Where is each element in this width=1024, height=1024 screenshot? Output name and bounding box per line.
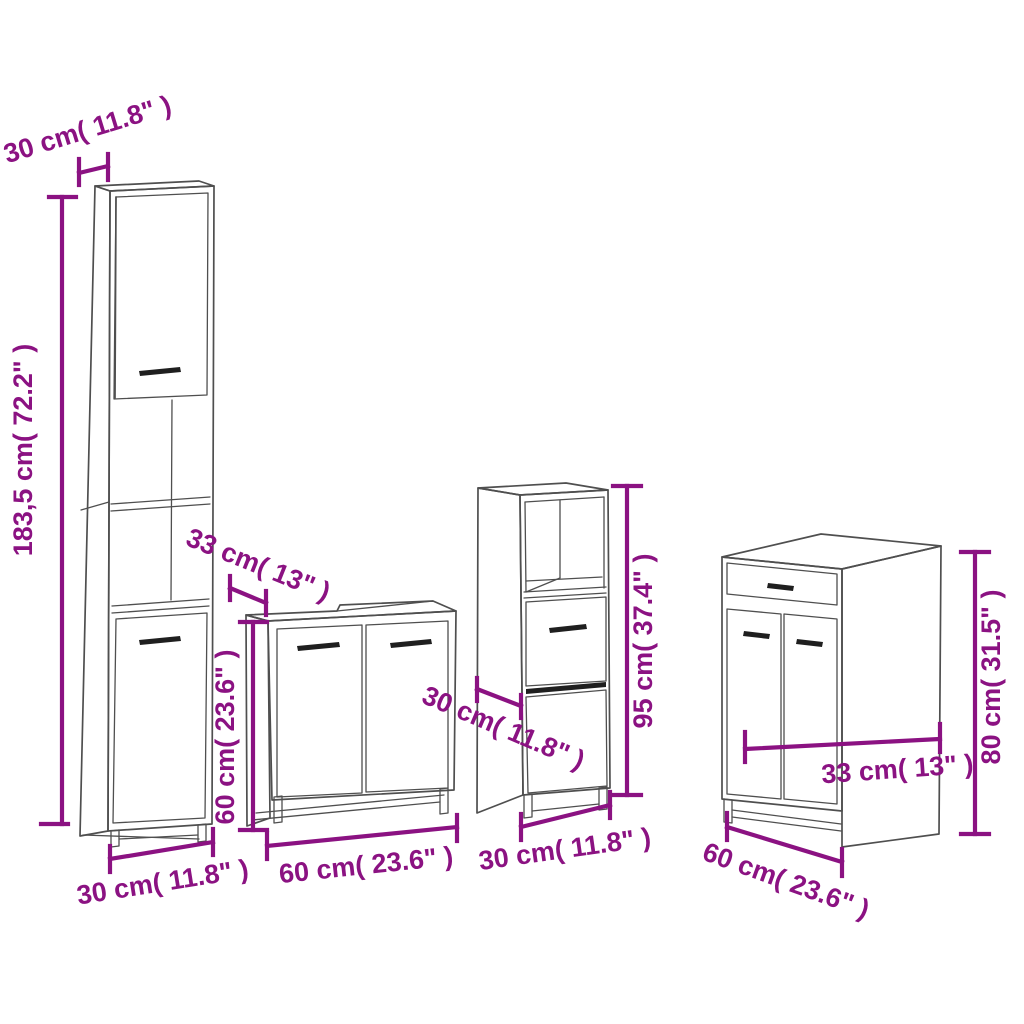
sink-cabinet-left-door — [277, 625, 362, 797]
tall-cabinet-left-leg — [111, 830, 119, 847]
side-cabinet-drawer-handle — [767, 583, 794, 591]
side-cabinet-top-face — [722, 534, 941, 569]
slim-width-label: 30 cm( 11.8" ) — [477, 822, 653, 876]
slim-cabinet-open-top-edge — [525, 497, 604, 502]
side-cabinet-side-panel — [842, 546, 941, 847]
sink-cabinet-right-leg — [440, 788, 448, 814]
tall-cabinet-upper-door-edge — [115, 197, 116, 398]
tall-height-dimension — [41, 197, 76, 824]
side-cabinet-right-door-handle — [796, 639, 823, 647]
tall-width-label: 30 cm( 11.8" ) — [75, 854, 251, 911]
sink-height-dimension — [240, 622, 267, 830]
side-height-label: 80 cm( 31.5" ) — [976, 590, 1006, 765]
tall-cabinet-front-face — [108, 186, 214, 831]
tall-cabinet-upper-handle — [139, 367, 181, 376]
tall-cabinet-shelf-2-lip — [112, 606, 209, 613]
furniture-dimension-diagram: 30 cm( 11.8" ) 183,5 cm( 72.2" ) 30 cm( … — [0, 0, 1024, 1024]
sink-cabinet — [246, 601, 456, 826]
tall-cabinet — [80, 181, 214, 847]
tall-cabinet-shelf-2-front — [112, 599, 209, 606]
tall-height-label: 183,5 cm( 72.2" ) — [8, 344, 38, 556]
side-cabinet — [722, 534, 941, 847]
slim-cabinet-side-panel — [477, 488, 523, 813]
sink-cabinet-side-panel — [246, 615, 270, 826]
side-cabinet-left-door — [727, 609, 781, 799]
tall-top-depth-dimension — [79, 154, 108, 185]
tall-cabinet-side-seam — [81, 502, 109, 510]
diagram-svg: 30 cm( 11.8" ) 183,5 cm( 72.2" ) 30 cm( … — [0, 0, 1024, 1024]
sink-depth-dimension — [230, 576, 266, 615]
tall-cabinet-lower-door — [113, 613, 207, 823]
tall-cabinet-lower-handle — [139, 636, 181, 645]
slim-cabinet-drawer — [526, 597, 606, 686]
cabinet-handles — [139, 367, 823, 694]
slim-cabinet-shelf-back — [526, 577, 602, 581]
side-width-label: 60 cm( 23.6" ) — [699, 837, 874, 925]
slim-cabinet-left-leg — [524, 794, 532, 818]
slim-cabinet — [477, 483, 610, 818]
tall-top-depth-label: 30 cm( 11.8" ) — [0, 90, 175, 169]
side-cabinet-bottom-rail-front — [732, 810, 841, 824]
side-cabinet-bottom-rail-back — [732, 817, 841, 831]
sink-cabinet-top-face — [246, 601, 456, 621]
sink-height-label: 60 cm( 23.6" ) — [210, 650, 240, 825]
tall-cabinet-shelf-1-lip — [111, 504, 210, 511]
slim-cabinet-drawer-handle — [549, 624, 587, 633]
side-depth-label: 33 cm( 13" ) — [820, 749, 974, 790]
sink-width-label: 60 cm( 23.6" ) — [278, 841, 455, 889]
tall-cabinet-upper-door — [114, 193, 208, 399]
tall-cabinet-shelf-1-front — [111, 497, 210, 504]
side-cabinet-drawer — [727, 563, 837, 605]
tall-cabinet-back-edge — [171, 400, 172, 600]
tall-cabinet-side-panel — [80, 186, 110, 836]
dimension-labels: 30 cm( 11.8" ) 183,5 cm( 72.2" ) 30 cm( … — [0, 90, 1006, 925]
side-cabinet-left-door-handle — [743, 631, 770, 639]
sink-cabinet-right-handle — [390, 639, 432, 648]
slim-cabinet-open-left-edge — [525, 502, 526, 592]
sink-depth-label: 33 cm( 13" ) — [182, 522, 335, 607]
sink-cabinet-left-handle — [297, 642, 340, 651]
slim-height-label: 95 cm( 37.4" ) — [628, 554, 658, 729]
